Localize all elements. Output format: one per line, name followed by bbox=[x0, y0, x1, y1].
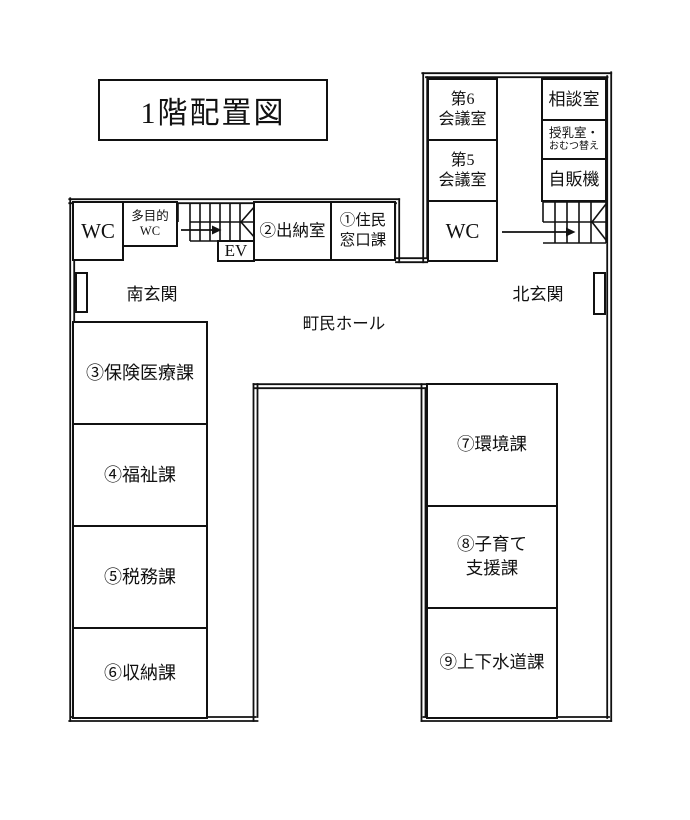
room-environment: ⑦環境課 bbox=[426, 383, 558, 507]
room-nursing: 授乳室・ おむつ替え bbox=[541, 119, 607, 160]
door-north-entrance bbox=[593, 272, 606, 315]
label-south-entrance: 南玄関 bbox=[102, 281, 202, 303]
floor-plan-canvas: 1階配置図 WC 多目的 WC EV ②出納室 ①住民 窓口課 第6 会議室 第… bbox=[0, 0, 690, 820]
room-resident-counter: ①住民 窓口課 bbox=[330, 201, 396, 261]
room-meeting-6: 第6 会議室 bbox=[427, 78, 498, 141]
room-meeting-5: 第5 会議室 bbox=[427, 139, 498, 202]
room-welfare: ④福祉課 bbox=[72, 423, 208, 527]
room-water-sewerage: ⑨上下水道課 bbox=[426, 607, 558, 719]
stairs-north-icon bbox=[543, 202, 606, 243]
room-multipurpose-wc: 多目的 WC bbox=[122, 201, 178, 247]
arrow-north-icon bbox=[502, 228, 576, 237]
room-consultation: 相談室 bbox=[541, 78, 607, 121]
room-insurance-medical: ③保険医療課 bbox=[72, 321, 208, 425]
label-main-hall: 町民ホール bbox=[284, 311, 404, 333]
room-elevator: EV bbox=[217, 240, 255, 262]
room-collection: ⑥収納課 bbox=[72, 627, 208, 719]
door-south-entrance bbox=[75, 272, 88, 313]
room-wc-west: WC bbox=[72, 201, 124, 261]
arrow-west-icon bbox=[181, 226, 222, 235]
stairs-west-icon bbox=[178, 204, 255, 241]
room-tax: ⑤税務課 bbox=[72, 525, 208, 629]
nursing-label-line2: おむつ替え bbox=[549, 141, 599, 153]
room-cashier: ②出納室 bbox=[253, 201, 332, 261]
room-vending: 自販機 bbox=[541, 158, 607, 202]
nursing-label-line1: 授乳室・ bbox=[549, 126, 599, 141]
floor-title: 1階配置図 bbox=[98, 79, 328, 141]
room-wc-north: WC bbox=[427, 200, 498, 262]
room-childcare-support: ⑧子育て 支援課 bbox=[426, 505, 558, 609]
label-north-entrance: 北玄関 bbox=[488, 281, 588, 303]
